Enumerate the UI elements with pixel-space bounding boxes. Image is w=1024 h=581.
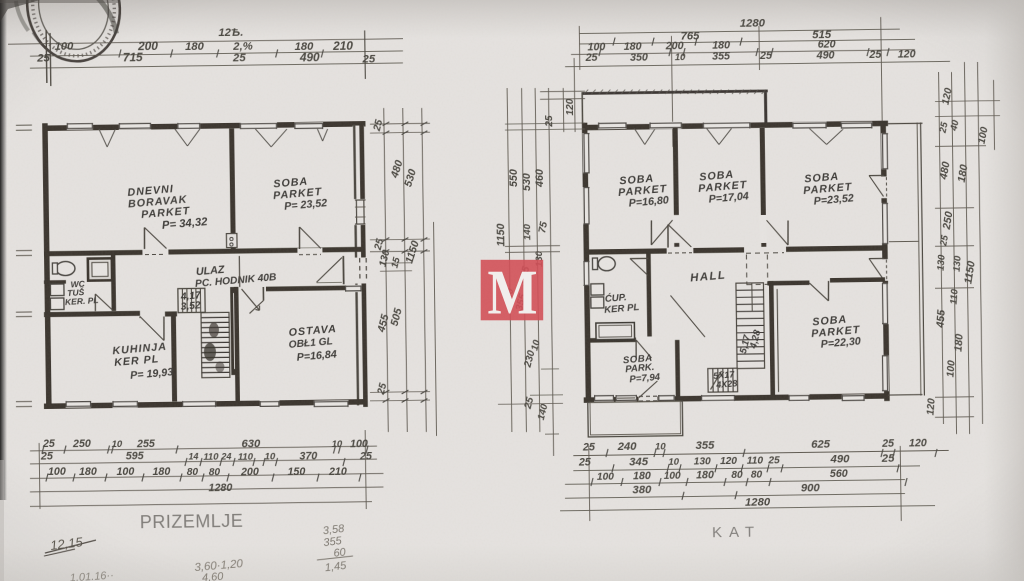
svg-text:M: M (488, 258, 538, 328)
